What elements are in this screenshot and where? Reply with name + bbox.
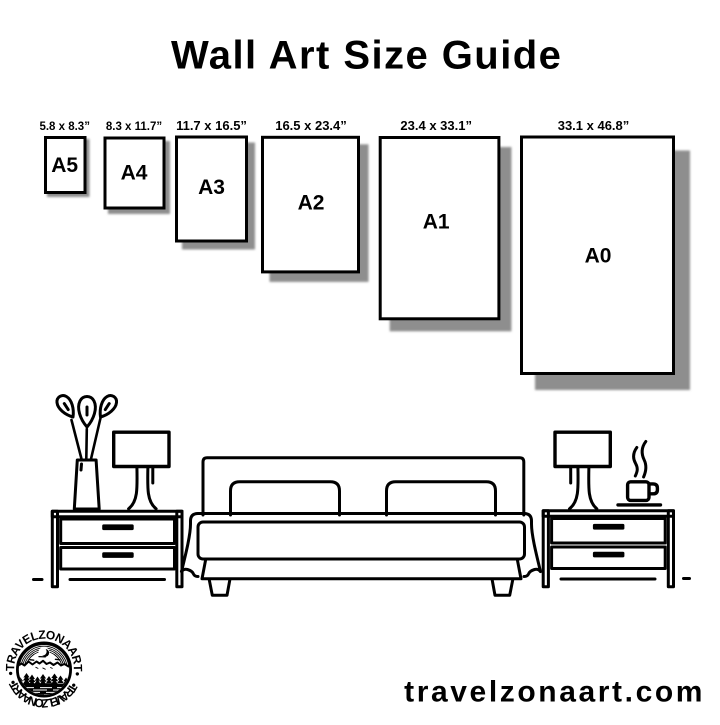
svg-text:Wall Art Size Guide: Wall Art Size Guide bbox=[171, 34, 562, 78]
svg-text:A0: A0 bbox=[585, 245, 612, 268]
svg-text:A1: A1 bbox=[423, 211, 450, 234]
svg-text:A2: A2 bbox=[298, 191, 325, 214]
svg-text:travelzonaart.com: travelzonaart.com bbox=[404, 676, 705, 709]
svg-text:A5: A5 bbox=[51, 154, 78, 177]
svg-text:11.7 x 16.5”: 11.7 x 16.5” bbox=[176, 118, 247, 133]
svg-text:33.1 x 46.8”: 33.1 x 46.8” bbox=[558, 118, 630, 133]
svg-text:A4: A4 bbox=[121, 162, 148, 185]
svg-text:8.3 x 11.7”: 8.3 x 11.7” bbox=[106, 121, 162, 133]
svg-text:A3: A3 bbox=[198, 176, 225, 199]
svg-text:16.5 x 23.4”: 16.5 x 23.4” bbox=[275, 118, 347, 133]
svg-text:23.4 x 33.1”: 23.4 x 33.1” bbox=[400, 118, 472, 133]
svg-text:5.8 x 8.3”: 5.8 x 8.3” bbox=[39, 121, 90, 133]
